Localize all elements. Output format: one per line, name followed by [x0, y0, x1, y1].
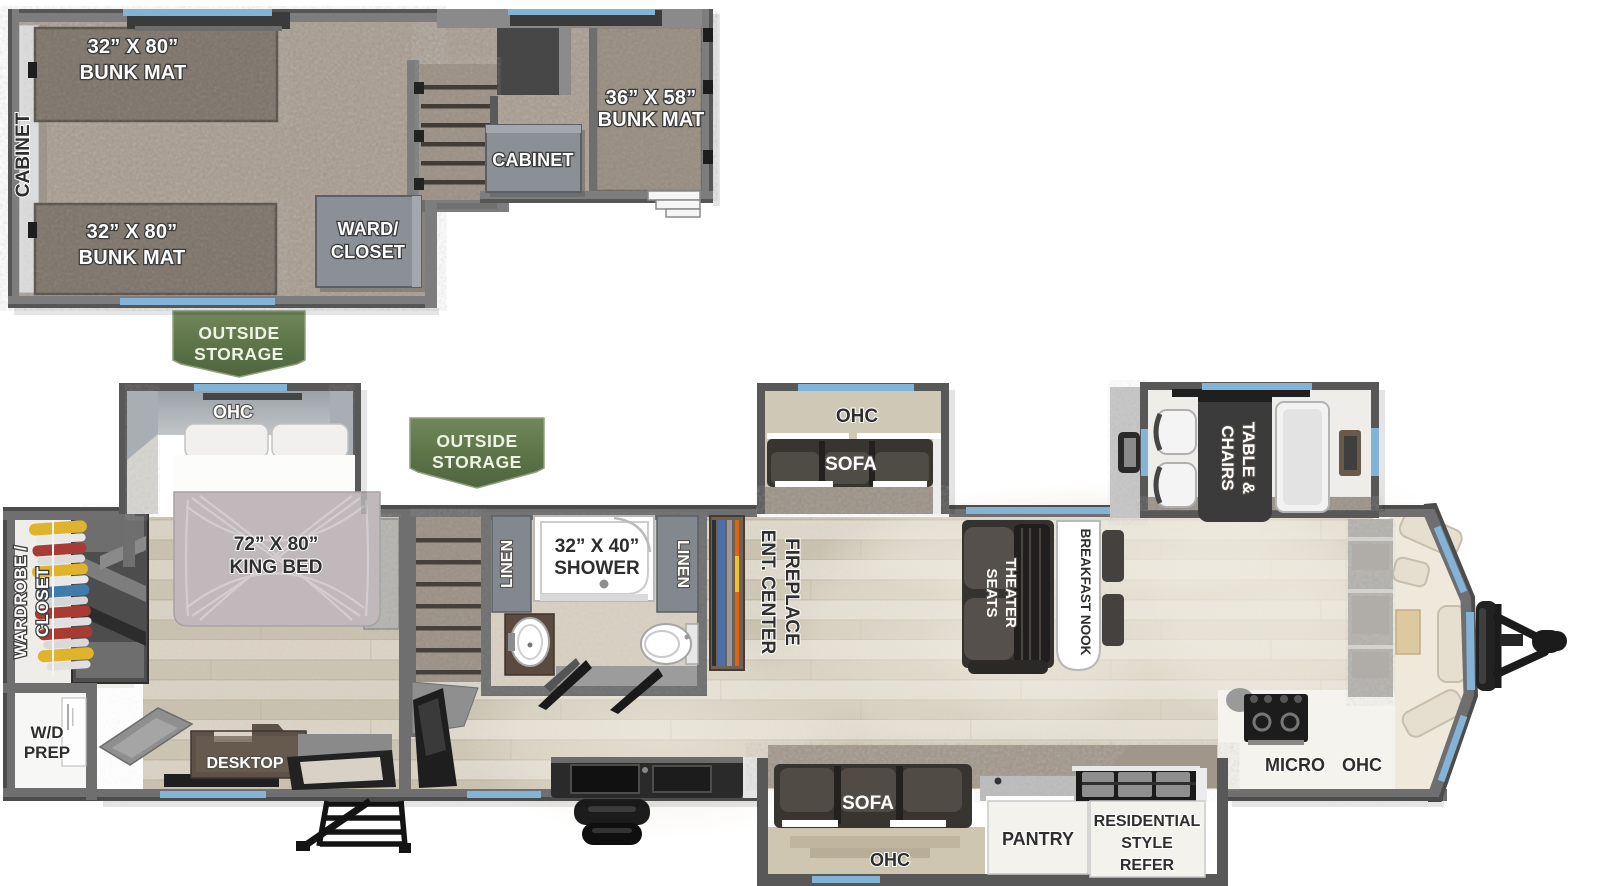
- svg-text:TABLE &: TABLE &: [1239, 422, 1258, 494]
- svg-text:LINEN: LINEN: [499, 540, 516, 588]
- svg-text:KING BED: KING BED: [230, 557, 323, 578]
- svg-text:DESKTOP: DESKTOP: [206, 755, 283, 772]
- svg-text:32” X 80”: 32” X 80”: [88, 36, 179, 58]
- svg-text:OHC: OHC: [836, 406, 879, 427]
- svg-text:STORAGE: STORAGE: [432, 452, 522, 472]
- svg-text:STYLE: STYLE: [1121, 835, 1173, 852]
- svg-text:SOFA: SOFA: [842, 793, 894, 814]
- svg-text:RESIDENTIAL: RESIDENTIAL: [1094, 813, 1201, 830]
- svg-text:WARDROBE /: WARDROBE /: [11, 546, 30, 659]
- svg-text:32” X 80”: 32” X 80”: [87, 221, 178, 243]
- svg-text:OUTSIDE: OUTSIDE: [198, 323, 279, 343]
- svg-text:BUNK MAT: BUNK MAT: [79, 247, 186, 269]
- svg-text:SEATS: SEATS: [983, 569, 1000, 618]
- svg-text:32” X 40”: 32” X 40”: [555, 536, 640, 557]
- svg-text:BUNK MAT: BUNK MAT: [598, 109, 705, 131]
- svg-text:MICRO: MICRO: [1265, 755, 1325, 775]
- svg-text:REFER: REFER: [1120, 857, 1175, 874]
- svg-text:OUTSIDE: OUTSIDE: [436, 431, 517, 451]
- svg-text:LINEN: LINEN: [674, 540, 691, 588]
- svg-text:STORAGE: STORAGE: [194, 344, 284, 364]
- svg-text:CHAIRS: CHAIRS: [1218, 425, 1237, 490]
- svg-text:CABINET: CABINET: [492, 150, 573, 170]
- svg-text:36” X 58”: 36” X 58”: [606, 87, 697, 109]
- svg-text:W/D: W/D: [30, 723, 63, 742]
- svg-text:OHC: OHC: [1342, 755, 1382, 775]
- svg-text:BREAKFAST NOOK: BREAKFAST NOOK: [1078, 529, 1093, 656]
- svg-text:OHC: OHC: [870, 850, 910, 870]
- svg-text:SHOWER: SHOWER: [554, 558, 640, 579]
- svg-text:PREP: PREP: [24, 743, 70, 762]
- svg-text:OHC: OHC: [213, 402, 253, 422]
- svg-text:THEATER: THEATER: [1002, 558, 1019, 628]
- svg-text:72” X 80”: 72” X 80”: [234, 534, 319, 555]
- svg-text:FIREPLACE: FIREPLACE: [781, 538, 802, 646]
- svg-text:CABINET: CABINET: [13, 112, 34, 197]
- svg-text:ENT. CENTER: ENT. CENTER: [757, 530, 778, 655]
- svg-text:PANTRY: PANTRY: [1002, 829, 1074, 849]
- svg-text:SOFA: SOFA: [825, 454, 877, 475]
- svg-text:CLOSET: CLOSET: [331, 242, 405, 262]
- svg-text:CLOSET: CLOSET: [33, 567, 52, 638]
- svg-text:BUNK MAT: BUNK MAT: [80, 62, 187, 84]
- svg-text:WARD/: WARD/: [338, 219, 399, 239]
